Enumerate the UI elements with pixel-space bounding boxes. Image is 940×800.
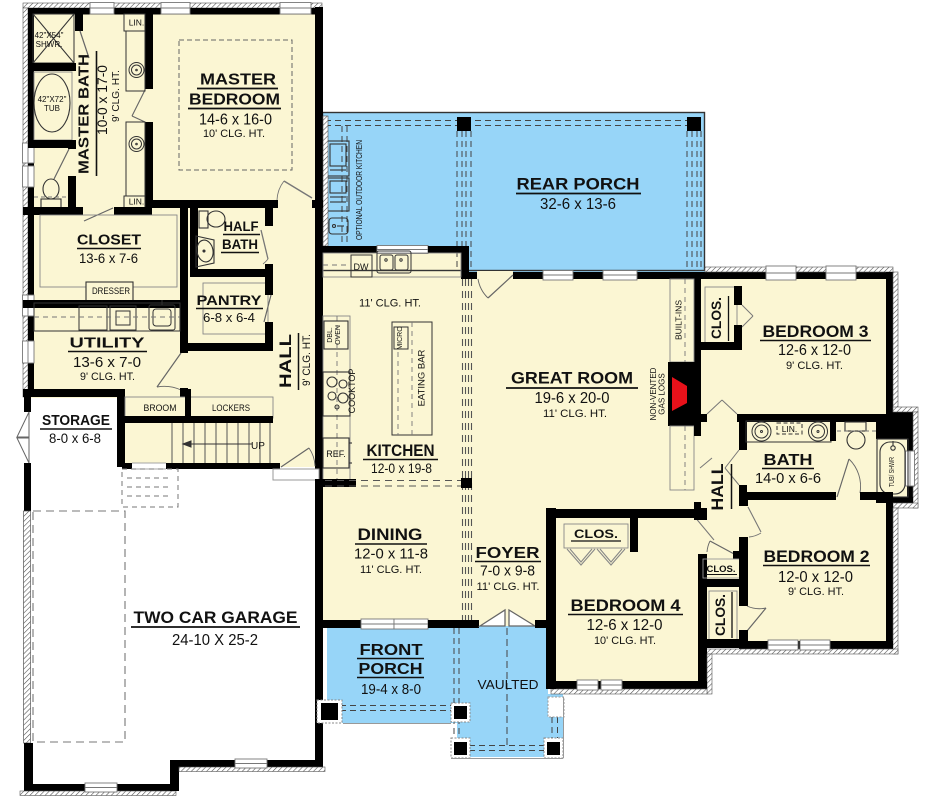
svg-text:10-0 x 17-0: 10-0 x 17-0	[95, 65, 110, 135]
svg-text:12-0 x 11-8: 12-0 x 11-8	[354, 546, 428, 563]
svg-text:REF.: REF.	[326, 449, 346, 459]
svg-text:BUILT-INS: BUILT-INS	[674, 300, 684, 340]
svg-text:MICRO: MICRO	[397, 326, 404, 350]
svg-text:12-0 x 12-0: 12-0 x 12-0	[778, 569, 853, 586]
svg-text:9' CLG. HT.: 9' CLG. HT.	[80, 371, 135, 383]
svg-text:UTILITY: UTILITY	[70, 335, 145, 352]
svg-text:32-6 x 13-6: 32-6 x 13-6	[540, 196, 616, 213]
svg-text:MASTER: MASTER	[200, 72, 276, 89]
svg-text:MASTER BATH: MASTER BATH	[77, 54, 93, 174]
svg-text:10' CLG. HT.: 10' CLG. HT.	[203, 128, 265, 140]
svg-text:9' CLG. HT.: 9' CLG. HT.	[786, 360, 843, 372]
svg-text:PANTRY: PANTRY	[197, 292, 263, 308]
svg-text:13-6 x 7-6: 13-6 x 7-6	[79, 250, 138, 266]
svg-text:19-4 x 8-0: 19-4 x 8-0	[361, 682, 421, 698]
svg-text:VAULTED: VAULTED	[478, 678, 539, 692]
svg-text:SHWR.: SHWR.	[36, 40, 63, 49]
svg-text:7-0 x 9-8: 7-0 x 9-8	[480, 563, 535, 580]
svg-text:LIN.: LIN.	[782, 424, 798, 434]
svg-text:13-6 x 7-0: 13-6 x 7-0	[73, 355, 141, 371]
svg-text:UP: UP	[251, 441, 265, 452]
svg-text:11' CLG. HT.: 11' CLG. HT.	[543, 408, 607, 420]
svg-text:12-6 x 12-0: 12-6 x 12-0	[587, 617, 663, 634]
svg-text:STORAGE: STORAGE	[42, 413, 110, 429]
svg-text:CLOS.: CLOS.	[574, 527, 618, 541]
svg-text:LIN.: LIN.	[129, 18, 145, 28]
svg-text:REAR PORCH: REAR PORCH	[517, 175, 640, 194]
svg-text:TUB/ SHWR: TUB/ SHWR	[889, 457, 896, 487]
svg-text:CLOS.: CLOS.	[713, 594, 728, 636]
svg-text:12-6 x 12-0: 12-6 x 12-0	[778, 342, 851, 359]
svg-text:BEDROOM 4: BEDROOM 4	[571, 596, 682, 615]
svg-text:DRESSER: DRESSER	[92, 286, 130, 296]
svg-text:HALF: HALF	[224, 219, 259, 234]
svg-text:12-0 x 19-8: 12-0 x 19-8	[371, 461, 432, 476]
svg-text:DINING: DINING	[358, 526, 423, 544]
svg-text:BEDROOM: BEDROOM	[189, 92, 280, 109]
svg-text:11' CLG. HT.: 11' CLG. HT.	[360, 564, 422, 576]
svg-text:9' CLG. HT.: 9' CLG. HT.	[111, 70, 122, 122]
svg-text:TWO CAR GARAGE: TWO CAR GARAGE	[134, 609, 298, 627]
svg-text:DBL.: DBL.	[327, 327, 334, 343]
svg-text:24-10 X 25-2: 24-10 X 25-2	[172, 632, 258, 649]
svg-text:8-0 x 6-8: 8-0 x 6-8	[49, 431, 101, 446]
svg-text:PORCH: PORCH	[359, 661, 423, 678]
svg-text:KITCHEN: KITCHEN	[367, 442, 435, 460]
svg-text:HALL: HALL	[709, 464, 727, 511]
svg-text:HALL: HALL	[277, 334, 295, 388]
svg-text:GREAT ROOM: GREAT ROOM	[511, 369, 633, 388]
svg-text:BEDROOM 3: BEDROOM 3	[763, 322, 869, 341]
svg-text:6-8 x 6-4: 6-8 x 6-4	[203, 310, 255, 325]
svg-text:BATH: BATH	[222, 237, 258, 252]
svg-text:9' CLG. HT.: 9' CLG. HT.	[788, 586, 844, 598]
svg-text:LIN.: LIN.	[129, 197, 145, 207]
svg-text:BROOM: BROOM	[144, 403, 177, 414]
svg-text:DW: DW	[354, 262, 369, 272]
svg-text:9' CLG. HT.: 9' CLG. HT.	[301, 334, 313, 386]
svg-text:FOYER: FOYER	[476, 545, 540, 562]
svg-text:11' CLG. HT.: 11' CLG. HT.	[359, 298, 421, 310]
svg-text:GAS LOGS: GAS LOGS	[658, 373, 667, 414]
svg-text:EATING BAR: EATING BAR	[417, 349, 428, 406]
svg-text:OPTIONAL OUTDOOR KITCHEN: OPTIONAL OUTDOOR KITCHEN	[355, 140, 364, 240]
svg-text:FRONT: FRONT	[360, 642, 423, 659]
svg-text:BEDROOM 2: BEDROOM 2	[764, 547, 870, 566]
svg-text:OVEN: OVEN	[335, 325, 342, 345]
svg-text:10' CLG. HT.: 10' CLG. HT.	[594, 635, 656, 647]
svg-text:19-6 x 20-0: 19-6 x 20-0	[535, 390, 610, 407]
svg-text:14-6 x 16-0: 14-6 x 16-0	[199, 112, 272, 129]
svg-text:42"X54": 42"X54"	[35, 31, 64, 40]
svg-text:CLOS.: CLOS.	[707, 564, 736, 575]
svg-text:42"X72": 42"X72"	[38, 95, 67, 104]
svg-text:LOCKERS: LOCKERS	[212, 403, 250, 414]
svg-text:TUB: TUB	[44, 104, 60, 113]
svg-text:COOKTOP: COOKTOP	[347, 369, 357, 414]
svg-text:CLOSET: CLOSET	[77, 233, 141, 249]
svg-text:11' CLG. HT.: 11' CLG. HT.	[477, 581, 540, 593]
svg-text:BATH: BATH	[764, 452, 813, 469]
svg-text:CLOS.: CLOS.	[709, 297, 724, 339]
svg-text:14-0 x 6-6: 14-0 x 6-6	[755, 471, 821, 487]
